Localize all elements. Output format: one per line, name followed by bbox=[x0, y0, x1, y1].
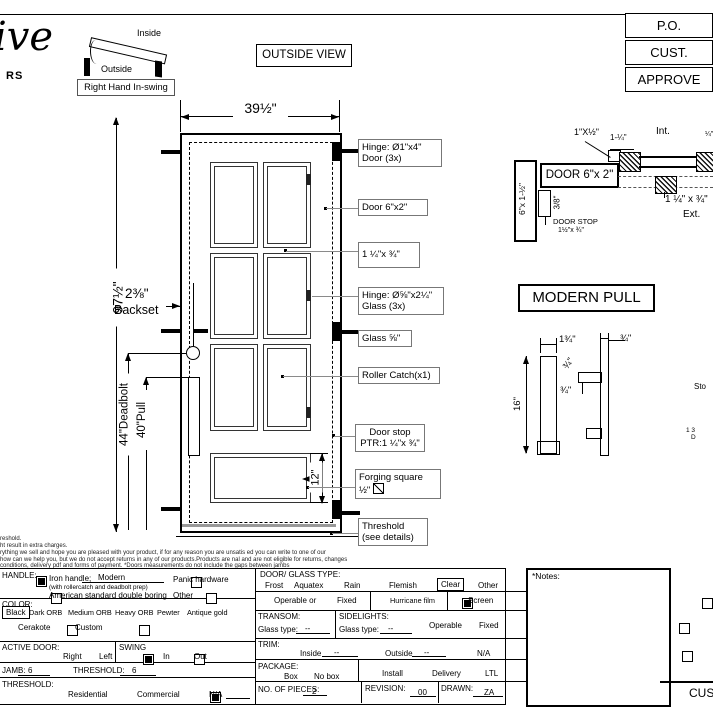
callout-door-size: Door 6"x2" bbox=[358, 199, 428, 216]
field-underline bbox=[412, 656, 446, 657]
cut-text-fragment: D bbox=[691, 434, 696, 442]
po-cell[interactable]: P.O. bbox=[625, 13, 713, 38]
dim-arrow bbox=[113, 524, 119, 532]
baseline bbox=[176, 536, 360, 537]
callout-line: Hinge: Ø⅝"x2¼" bbox=[362, 290, 440, 301]
ext-line bbox=[582, 382, 583, 394]
active-right-label[interactable]: Right bbox=[63, 652, 82, 661]
glass-option[interactable]: Other bbox=[478, 581, 498, 590]
color-option[interactable]: Dark ORB bbox=[29, 609, 62, 617]
bottom-panel bbox=[210, 453, 311, 503]
form-col-divider bbox=[358, 659, 359, 681]
form-col-divider bbox=[370, 591, 371, 610]
stop-strip-label: 1"X½" bbox=[574, 128, 599, 137]
leader-thick bbox=[340, 330, 358, 334]
dim-arrow bbox=[113, 117, 119, 125]
form-row-divider bbox=[0, 677, 255, 678]
leader bbox=[283, 376, 358, 377]
ext-line bbox=[556, 338, 557, 353]
handle-label: HANDLE: bbox=[2, 571, 37, 580]
swing-in-label[interactable]: In bbox=[163, 652, 170, 661]
package-box-label[interactable]: Box bbox=[284, 672, 298, 681]
form-row-divider bbox=[255, 681, 505, 682]
field-underline bbox=[322, 656, 358, 657]
sidelights-operable-checkbox[interactable] bbox=[679, 623, 690, 634]
field-underline bbox=[82, 582, 164, 583]
glass-hinge bbox=[306, 407, 311, 418]
sidelights-label: SIDELIGHTS: bbox=[339, 612, 389, 621]
callout-roller-catch: Roller Catch(x1) bbox=[358, 367, 440, 384]
view-label: OUTSIDE VIEW bbox=[256, 44, 352, 67]
field-underline bbox=[226, 698, 250, 699]
trim-na-label[interactable]: N/A bbox=[477, 649, 490, 658]
dim-arrow bbox=[181, 114, 189, 120]
glass-pane bbox=[210, 253, 258, 339]
callout-hinge-glass: Hinge: Ø⅝"x2¼" Glass (3x) bbox=[358, 287, 444, 315]
strike-mark bbox=[161, 329, 180, 333]
form-connector bbox=[505, 659, 526, 660]
callout-line: (see details) bbox=[362, 532, 424, 543]
cerakote-label[interactable]: Cerakote bbox=[18, 623, 50, 632]
iron-handle-checkbox[interactable] bbox=[36, 576, 47, 587]
custom-color-checkbox[interactable] bbox=[139, 625, 150, 636]
callout-line: Hinge: Ø1"x4" bbox=[362, 142, 438, 153]
callout-line: Roller Catch(x1) bbox=[362, 370, 436, 381]
panel-dim: 12" bbox=[310, 463, 323, 493]
install-label[interactable]: Install bbox=[382, 669, 403, 678]
color-option[interactable]: Medium ORB bbox=[68, 609, 112, 617]
form-connector bbox=[505, 638, 526, 639]
standoff-dim-2: ¾" bbox=[560, 386, 571, 395]
fine-print-line: rything we sell and hope you are pleased… bbox=[0, 550, 326, 557]
fixed-label[interactable]: Fixed bbox=[337, 596, 357, 605]
threshold-size-label: THRESHOLD: bbox=[73, 666, 125, 675]
iron-handle-sub: (with rollercatch and deadbolt prep) bbox=[49, 584, 148, 591]
pull-handle-bar bbox=[188, 377, 200, 456]
trim-label: TRIM: bbox=[258, 640, 280, 649]
cust-cell[interactable]: CUST. bbox=[625, 40, 713, 65]
form-row-divider bbox=[255, 659, 505, 660]
callout-door-stop: Door stop PTR:1 ¼"x ¾" bbox=[355, 424, 425, 452]
edge-fragment: ¼" bbox=[705, 131, 713, 138]
jamb-size-label: 6"x 1-½" bbox=[517, 169, 529, 229]
dim-38-label: 3/8" bbox=[553, 188, 564, 218]
jamb-value[interactable]: 6 bbox=[28, 666, 32, 675]
notes-label: *Notes: bbox=[532, 572, 560, 581]
logo-script: ive bbox=[0, 14, 53, 60]
ltl-label[interactable]: LTL bbox=[485, 669, 498, 678]
callout-line: Forging square bbox=[359, 472, 437, 483]
transom-label: TRANSOM: bbox=[258, 612, 300, 621]
american-boring-label[interactable]: American standard double boring bbox=[49, 591, 167, 600]
drawn-label: DRAWN: bbox=[441, 684, 473, 693]
signature-label: CUS bbox=[689, 686, 713, 700]
color-option[interactable]: Heavy ORB bbox=[115, 609, 154, 617]
form-connector bbox=[505, 610, 526, 611]
head-rail-panel bbox=[639, 156, 696, 168]
glass-option[interactable]: Flemish bbox=[389, 581, 417, 590]
glass-pane bbox=[263, 162, 311, 248]
field-underline bbox=[18, 675, 50, 676]
inside-label: Inside bbox=[137, 29, 161, 38]
callout-hinge-door: Hinge: Ø1"x4" Door (3x) bbox=[358, 139, 442, 167]
callout-glass: Glass ⅝" bbox=[358, 330, 412, 347]
glass-pane-inner bbox=[214, 257, 254, 335]
active-door-label: ACTIVE DOOR: bbox=[2, 643, 59, 652]
panic-hardware-label[interactable]: Panic hardware bbox=[173, 575, 229, 584]
block-dim-label: 1 ¼" x ¾" bbox=[665, 194, 713, 205]
form-connector bbox=[505, 681, 526, 682]
color-option[interactable]: Antique gold bbox=[187, 609, 228, 617]
jamb-label: JAMB: bbox=[2, 666, 26, 675]
pull-grip-bar bbox=[540, 356, 557, 454]
callout-line: Door (3x) bbox=[362, 153, 438, 164]
callout-line: ½" bbox=[359, 483, 437, 496]
form-row-divider bbox=[0, 641, 255, 642]
swing-out-label[interactable]: Out bbox=[194, 652, 207, 661]
form-col-divider bbox=[361, 681, 362, 703]
dim-arrow bbox=[331, 114, 339, 120]
sidelights-glass-value[interactable]: -- bbox=[388, 624, 393, 633]
threshold-size-value[interactable]: 6 bbox=[132, 666, 136, 675]
section-door-label: DOOR 6"x 2" bbox=[540, 163, 619, 188]
notes-box[interactable] bbox=[526, 568, 671, 707]
field-underline bbox=[473, 696, 503, 697]
dim-arrow bbox=[319, 453, 325, 461]
leader bbox=[545, 217, 546, 225]
backset-mark bbox=[194, 329, 208, 333]
top-rule bbox=[0, 14, 625, 15]
ext-line bbox=[608, 333, 609, 345]
iron-handle-value[interactable]: Modern bbox=[98, 573, 125, 582]
door-stop-label: DOOR STOP bbox=[553, 218, 598, 226]
callout-line: PTR:1 ¼"x ¾" bbox=[359, 438, 421, 449]
field-underline bbox=[410, 696, 436, 697]
field-underline bbox=[303, 695, 327, 696]
glass-option-clear-selected[interactable]: Clear bbox=[437, 578, 464, 591]
leader bbox=[312, 296, 358, 297]
square-diagonal-icon bbox=[373, 483, 384, 494]
swing-left-post bbox=[84, 58, 90, 76]
signature-line[interactable] bbox=[660, 681, 713, 683]
ext-line bbox=[339, 100, 340, 132]
leader-thick bbox=[340, 149, 358, 153]
hurricane-film-label[interactable]: Hurricane film bbox=[390, 597, 435, 605]
form-col-divider bbox=[438, 681, 439, 703]
form-row-divider bbox=[255, 610, 505, 611]
outside-label: Outside bbox=[101, 65, 132, 74]
callout-muntin-size: 1 ¼"x ¾" bbox=[358, 242, 420, 268]
active-right-checkbox[interactable] bbox=[143, 654, 154, 665]
swing-caption: Right Hand In-swing bbox=[77, 79, 175, 96]
glass-pane bbox=[263, 344, 311, 431]
form-col-divider bbox=[335, 610, 336, 638]
logo-text-fragment: RS bbox=[6, 70, 23, 82]
screen-checkbox[interactable] bbox=[702, 598, 713, 609]
handle-other-checkbox[interactable] bbox=[206, 593, 217, 604]
ext-line bbox=[600, 333, 601, 345]
active-left-label[interactable]: Left bbox=[99, 652, 112, 661]
approve-cell[interactable]: APPROVE bbox=[625, 67, 713, 92]
strike-mark bbox=[161, 507, 180, 511]
leader bbox=[585, 141, 611, 158]
leader-thick bbox=[340, 511, 360, 515]
package-nobox-label[interactable]: No box bbox=[314, 672, 339, 681]
door-width-dim: 39½" bbox=[233, 100, 288, 116]
form-col-divider bbox=[115, 641, 116, 662]
swing-right-post bbox=[155, 61, 162, 78]
leader bbox=[128, 353, 186, 354]
glass-hinge bbox=[306, 174, 311, 185]
package-label: PACKAGE: bbox=[258, 662, 298, 671]
pull-width-dim: 1¾" bbox=[559, 335, 576, 344]
leader bbox=[326, 208, 358, 209]
sidelights-fixed-label[interactable]: Fixed bbox=[479, 621, 499, 630]
door-hinge bbox=[332, 500, 341, 519]
dim-line bbox=[526, 356, 527, 453]
glass-type-label: DOOR/ GLASS TYPE: bbox=[260, 570, 340, 579]
color-option[interactable]: Pewter bbox=[157, 609, 180, 617]
fine-print-line: reshold. bbox=[0, 536, 21, 543]
strike-mark bbox=[161, 150, 180, 154]
pull-height-dim: 16" bbox=[512, 389, 524, 419]
leader bbox=[332, 533, 358, 534]
delivery-label[interactable]: Delivery bbox=[432, 669, 461, 678]
glass-pane bbox=[210, 162, 258, 248]
revision-label: REVISION: bbox=[365, 684, 405, 693]
callout-forging-square: Forging square ½" bbox=[355, 469, 441, 499]
transom-glass-label: Glass type: bbox=[258, 625, 298, 634]
backset-ref-line bbox=[193, 283, 194, 346]
threshold-label: THRESHOLD: bbox=[2, 680, 54, 689]
threshold-na-label[interactable]: N/A bbox=[209, 690, 222, 699]
callout-line: Door 6"x2" bbox=[362, 202, 424, 213]
door-stop-profile bbox=[538, 190, 551, 217]
deadbolt-dim: 44"Deadbolt bbox=[119, 374, 132, 456]
glass-pane-inner bbox=[214, 348, 254, 427]
form-row-divider bbox=[255, 591, 505, 592]
field-underline bbox=[296, 633, 330, 634]
dim-arrow bbox=[125, 353, 131, 361]
pull-grip-base bbox=[537, 441, 560, 455]
field-underline bbox=[120, 675, 156, 676]
callout-line: Door stop bbox=[359, 427, 421, 438]
dim-arrow bbox=[523, 356, 529, 364]
dim-line bbox=[541, 344, 556, 345]
modern-pull-title: MODERN PULL bbox=[518, 284, 655, 312]
sidelights-glass-label: Glass type: bbox=[339, 625, 379, 634]
backset-dim: 2⅜" bbox=[125, 286, 149, 301]
leader bbox=[146, 377, 188, 378]
leader bbox=[286, 251, 358, 252]
custom-color-label[interactable]: Custom bbox=[75, 623, 103, 632]
int-label: Int. bbox=[656, 127, 670, 136]
glass-pane-inner bbox=[214, 166, 254, 244]
glass-hinge bbox=[306, 290, 311, 301]
screen-label[interactable]: Screen bbox=[468, 596, 493, 605]
glass-pane-inner bbox=[267, 257, 307, 335]
handle-other-label[interactable]: Other bbox=[173, 591, 193, 600]
head-rail-end bbox=[619, 152, 641, 172]
pull-dim: 40"Pull bbox=[136, 390, 148, 450]
door-height-dim: 97½" bbox=[110, 269, 125, 327]
glass-pane-inner bbox=[267, 348, 307, 427]
backset-label: Backset bbox=[114, 303, 158, 317]
ext-label: Ext. bbox=[683, 210, 700, 219]
glass-option[interactable]: Aquatex bbox=[294, 581, 323, 590]
dim-arrow bbox=[143, 377, 149, 385]
deadbolt-circle bbox=[186, 346, 200, 360]
form-row-divider bbox=[0, 662, 255, 663]
ext-line bbox=[540, 338, 541, 353]
trim-outside-checkbox[interactable] bbox=[682, 651, 693, 662]
trim-outside-label[interactable]: Outside bbox=[385, 649, 413, 658]
callout-line: Threshold bbox=[362, 521, 424, 532]
trim-inside-label[interactable]: Inside bbox=[300, 649, 321, 658]
leader bbox=[308, 487, 355, 488]
form-connector bbox=[505, 591, 526, 592]
glass-pane bbox=[210, 344, 258, 431]
commercial-label[interactable]: Commercial bbox=[137, 690, 180, 699]
transom-glass-value[interactable]: -- bbox=[305, 624, 310, 633]
sidelights-operable-label[interactable]: Operable bbox=[429, 621, 462, 630]
color-option-black-selected[interactable]: Black bbox=[2, 606, 30, 619]
bottom-panel-inner bbox=[214, 457, 307, 499]
operable-label[interactable]: Operable or bbox=[274, 596, 316, 605]
fine-print-line: ht result in extra charges. bbox=[0, 543, 67, 550]
glass-pane bbox=[263, 253, 311, 339]
glass-option[interactable]: Rain bbox=[344, 581, 360, 590]
swing-label: SWING bbox=[119, 643, 146, 652]
cut-text-fragment: Sto bbox=[694, 382, 706, 391]
glass-option[interactable]: Frost bbox=[265, 581, 283, 590]
glass-pane-inner bbox=[267, 166, 307, 244]
swing-arc bbox=[90, 40, 102, 64]
door-stop-dim: 1½"x ¾" bbox=[558, 227, 584, 235]
dim-1q-label: 1-¼" bbox=[610, 134, 627, 142]
callout-line: Glass ⅝" bbox=[362, 333, 408, 344]
dim-arrow bbox=[319, 496, 325, 504]
callout-line: Glass (3x) bbox=[362, 301, 440, 312]
callout-line: 1 ¼"x ¾" bbox=[362, 245, 416, 265]
pieces-label: NO. OF PIECES: bbox=[258, 685, 319, 694]
dim-arrow bbox=[523, 446, 529, 454]
field-underline bbox=[380, 633, 412, 634]
mount-width-dim: ¾" bbox=[620, 334, 631, 343]
spec-sheet: ive RS Inside Outside Right Hand In-swin… bbox=[0, 0, 713, 713]
head-rail-end bbox=[696, 152, 713, 172]
form-col-divider bbox=[447, 591, 448, 610]
form-row-divider bbox=[255, 638, 505, 639]
pull-standoff-bottom bbox=[586, 428, 602, 439]
callout-threshold: Threshold (see details) bbox=[358, 518, 428, 546]
leader bbox=[334, 436, 355, 437]
threshold-band bbox=[182, 524, 336, 527]
residential-label[interactable]: Residential bbox=[68, 690, 108, 699]
dim-arrow bbox=[172, 303, 180, 309]
stop-block bbox=[655, 176, 677, 194]
